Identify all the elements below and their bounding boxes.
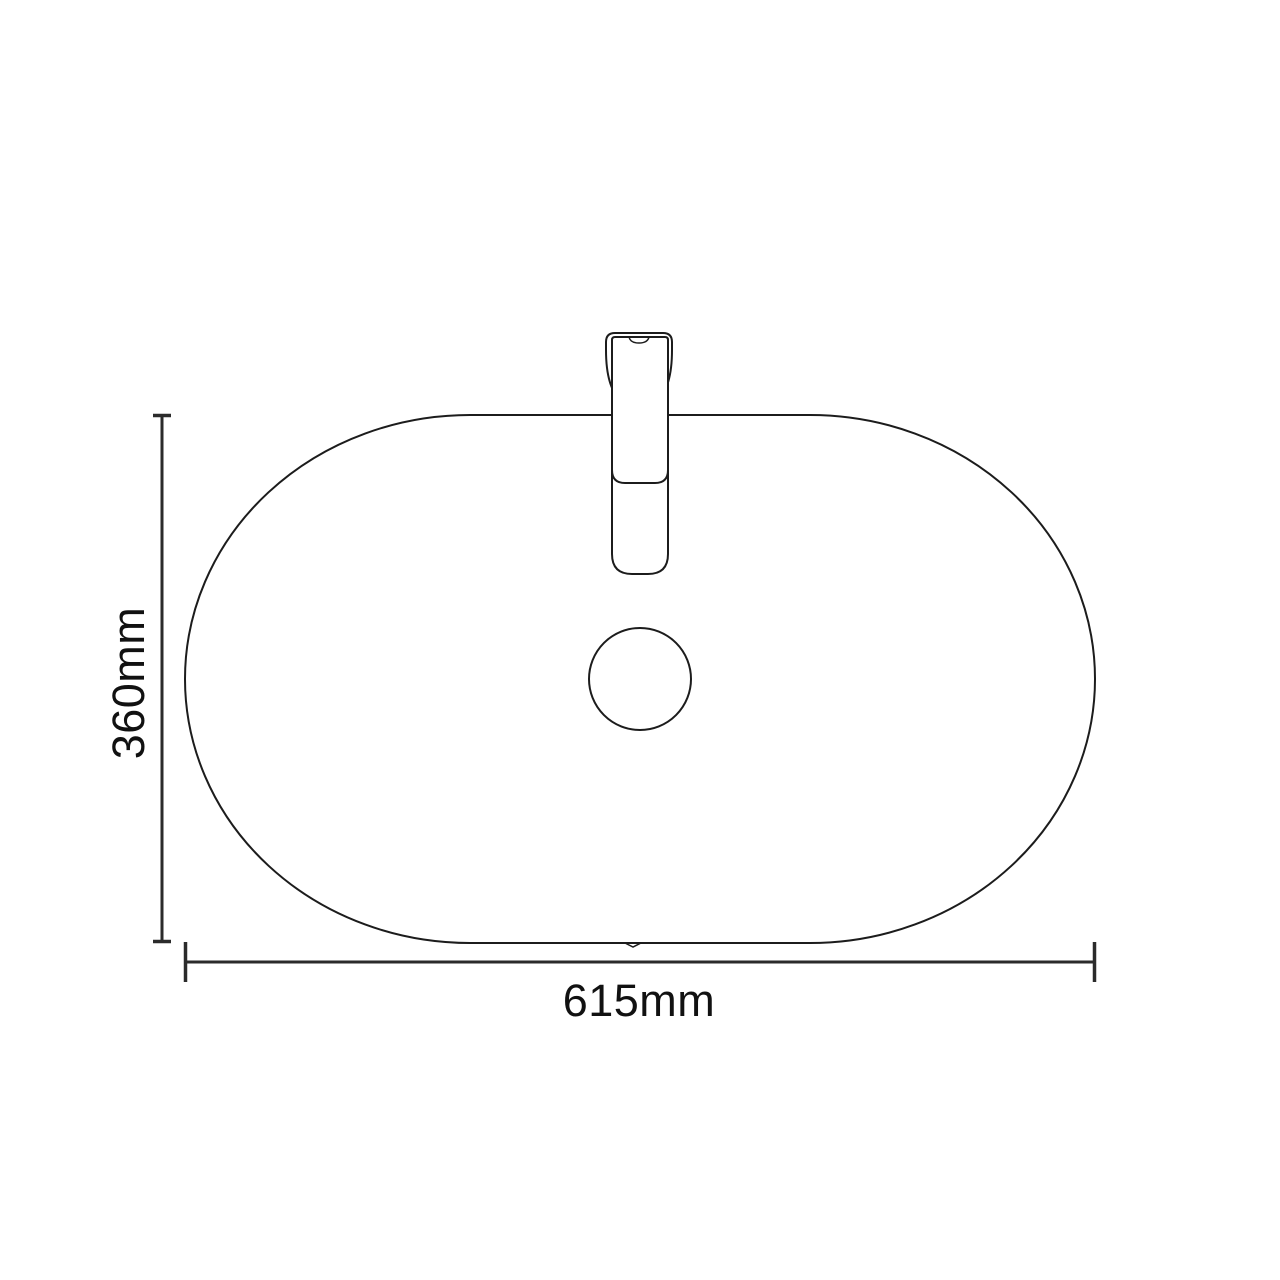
technical-drawing-canvas: 360mm 615mm [0,0,1280,1280]
drain-hole [589,628,691,730]
faucet-spout-body [612,337,668,574]
width-dimension-label: 615mm [563,975,716,1027]
height-dimension-label: 360mm [103,607,155,760]
faucet [606,333,672,574]
basin-drawing [0,0,1280,1280]
height-dimension-line [153,416,171,942]
